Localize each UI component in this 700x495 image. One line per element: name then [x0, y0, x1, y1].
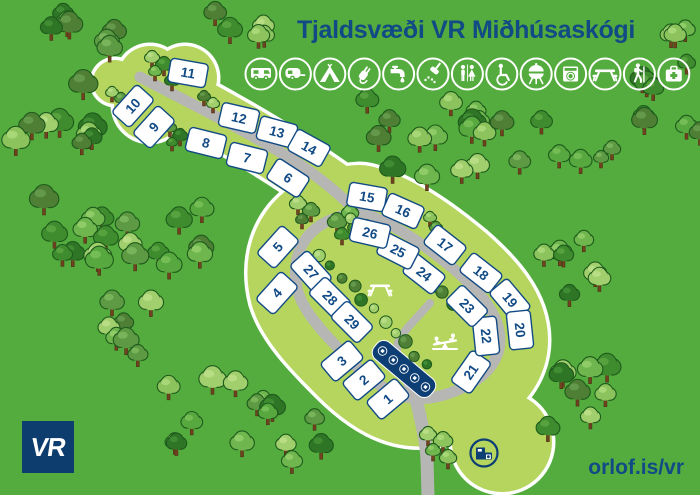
bush — [399, 335, 413, 349]
website-link[interactable]: orlof.is/vr — [588, 456, 684, 480]
site-number: 22 — [478, 328, 494, 345]
bush — [355, 294, 368, 307]
bush — [409, 351, 419, 361]
site-marker-20: 20 — [506, 310, 534, 350]
bush — [369, 304, 378, 313]
campsite-map-poster: 1234567891011121314151617181920212223242… — [0, 0, 700, 495]
bush — [422, 360, 431, 369]
bush — [349, 280, 361, 292]
page-title: Tjaldsvæði VR Miðhúsaskógi — [248, 16, 684, 45]
site-number: 15 — [358, 188, 376, 205]
bush — [325, 261, 334, 270]
map-canvas: 1234567891011121314151617181920212223242… — [0, 0, 700, 495]
bush — [391, 328, 400, 337]
site-number: 20 — [512, 322, 528, 339]
bush — [380, 316, 392, 328]
bush — [337, 273, 347, 283]
vr-logo: VR — [22, 421, 74, 473]
vr-logo-text: VR — [29, 432, 67, 463]
